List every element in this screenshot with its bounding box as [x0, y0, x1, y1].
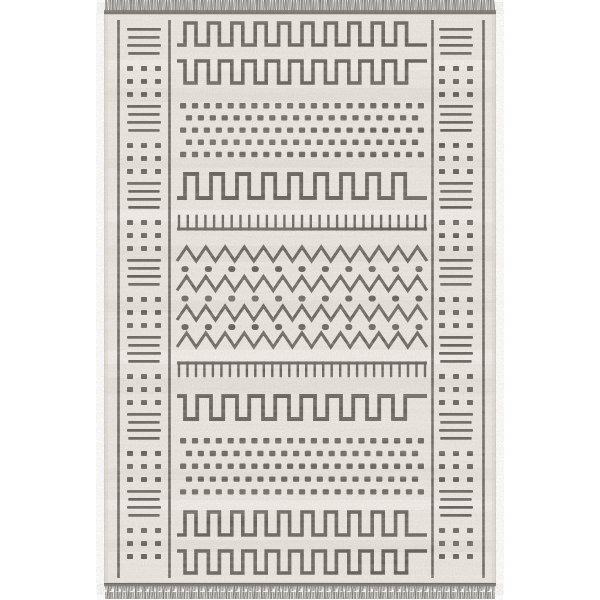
fringe-bottom — [104, 583, 496, 599]
fabric-texture-overlay — [104, 14, 496, 583]
product-photo-canvas — [0, 0, 600, 600]
rug-image — [0, 0, 600, 600]
fringe-top — [104, 0, 496, 14]
